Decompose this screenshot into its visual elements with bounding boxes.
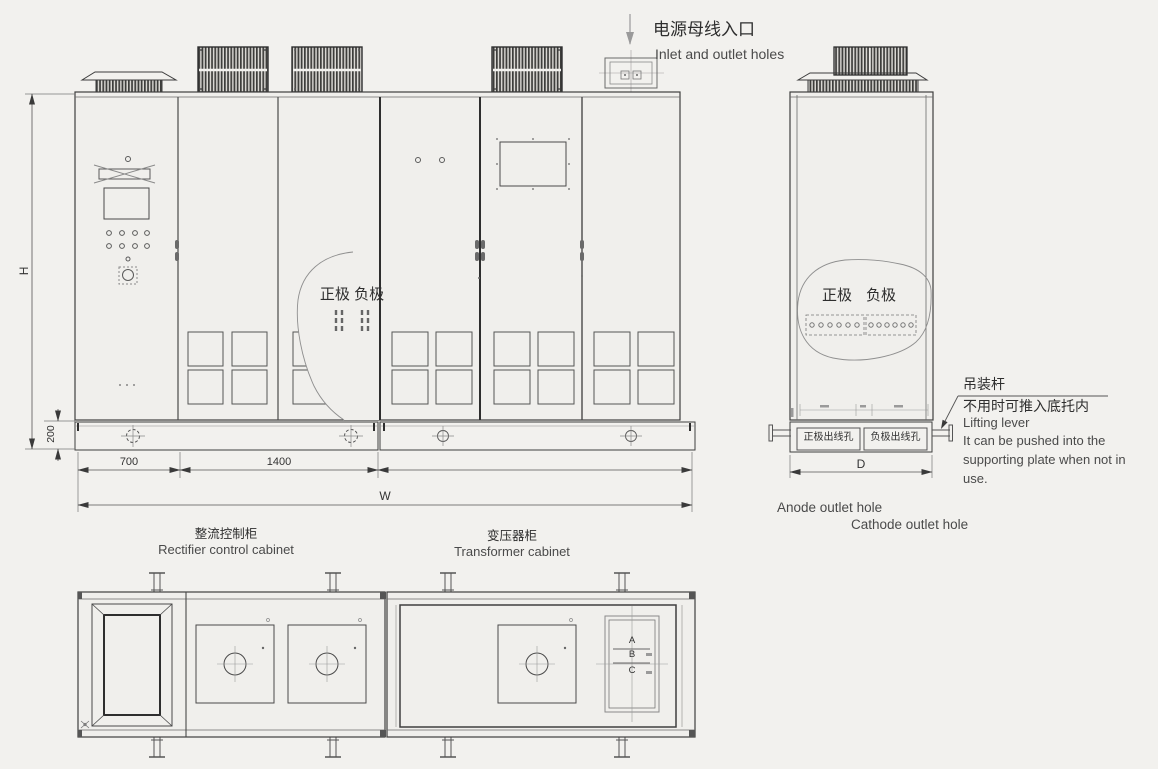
dim-base-height-label: 200 [45, 419, 57, 449]
cathode-outlet-box-label: 负极出线孔 [864, 432, 927, 444]
cathode-outlet-hole-label: Cathode outlet hole [851, 517, 968, 533]
anode-outlet-hole-label: Anode outlet hole [777, 500, 882, 516]
fan-unit-icon [292, 47, 362, 92]
lifting-pin-icon [149, 573, 630, 592]
plan-label-c: C [626, 666, 638, 677]
anode-outlet-box-label: 正极出线孔 [797, 432, 860, 444]
lifting-lever-label-en: Lifting lever [963, 416, 1029, 431]
dim-doors-width-label: 1400 [249, 456, 309, 469]
lifting-note-en-2: supporting plate when not in [963, 453, 1126, 468]
front-terminal-label: 正极 负极 [312, 286, 392, 303]
plan-label-b: B [626, 650, 638, 661]
transformer-caption-en: Transformer cabinet [412, 545, 612, 560]
fan-unit-icon [834, 47, 907, 75]
side-anode-label: 正极 [822, 287, 852, 304]
vent-hood-icon [798, 73, 927, 92]
plan-rectifier-assembly [78, 592, 386, 737]
side-cathode-label: 负极 [866, 287, 896, 304]
lifting-note-en-1: It can be pushed into the [963, 434, 1105, 449]
inlet-label-cn: 电源母线入口 [653, 20, 755, 40]
dim-depth-label: D [846, 458, 876, 472]
cabinet-base [75, 422, 695, 450]
lifting-lever-label-cn: 吊装杆 [963, 376, 1005, 392]
dim-rectifier-width-label: 700 [99, 456, 159, 469]
vent-hood-icon [82, 72, 176, 92]
front-view-linework [25, 14, 695, 512]
lifting-pin-icon [149, 737, 630, 757]
rectifier-caption-cn: 整流控制柜 [156, 527, 296, 541]
dim-total-width-label: W [365, 490, 405, 504]
plan-label-a: A [626, 636, 638, 647]
plan-view-linework [78, 573, 695, 757]
side-cabinet-body [790, 92, 933, 420]
lifting-note-en-3: use. [963, 472, 988, 487]
mounting-hole-icon [121, 425, 642, 447]
inlet-label-en: Inlet and outlet holes [655, 46, 784, 62]
lifting-note-cn: 不用时可推入底托内 [963, 398, 1089, 414]
engineering-drawing: 电源母线入口 Inlet and outlet holes 正极 负极 H 20… [0, 0, 1158, 769]
fan-unit-icon [198, 47, 268, 92]
rectifier-caption-en: Rectifier control cabinet [126, 543, 326, 558]
transformer-caption-cn: 变压器柜 [442, 529, 582, 543]
dim-height-label: H [18, 258, 32, 284]
plan-transformer-assembly [387, 592, 695, 737]
fan-unit-icon [492, 47, 562, 92]
